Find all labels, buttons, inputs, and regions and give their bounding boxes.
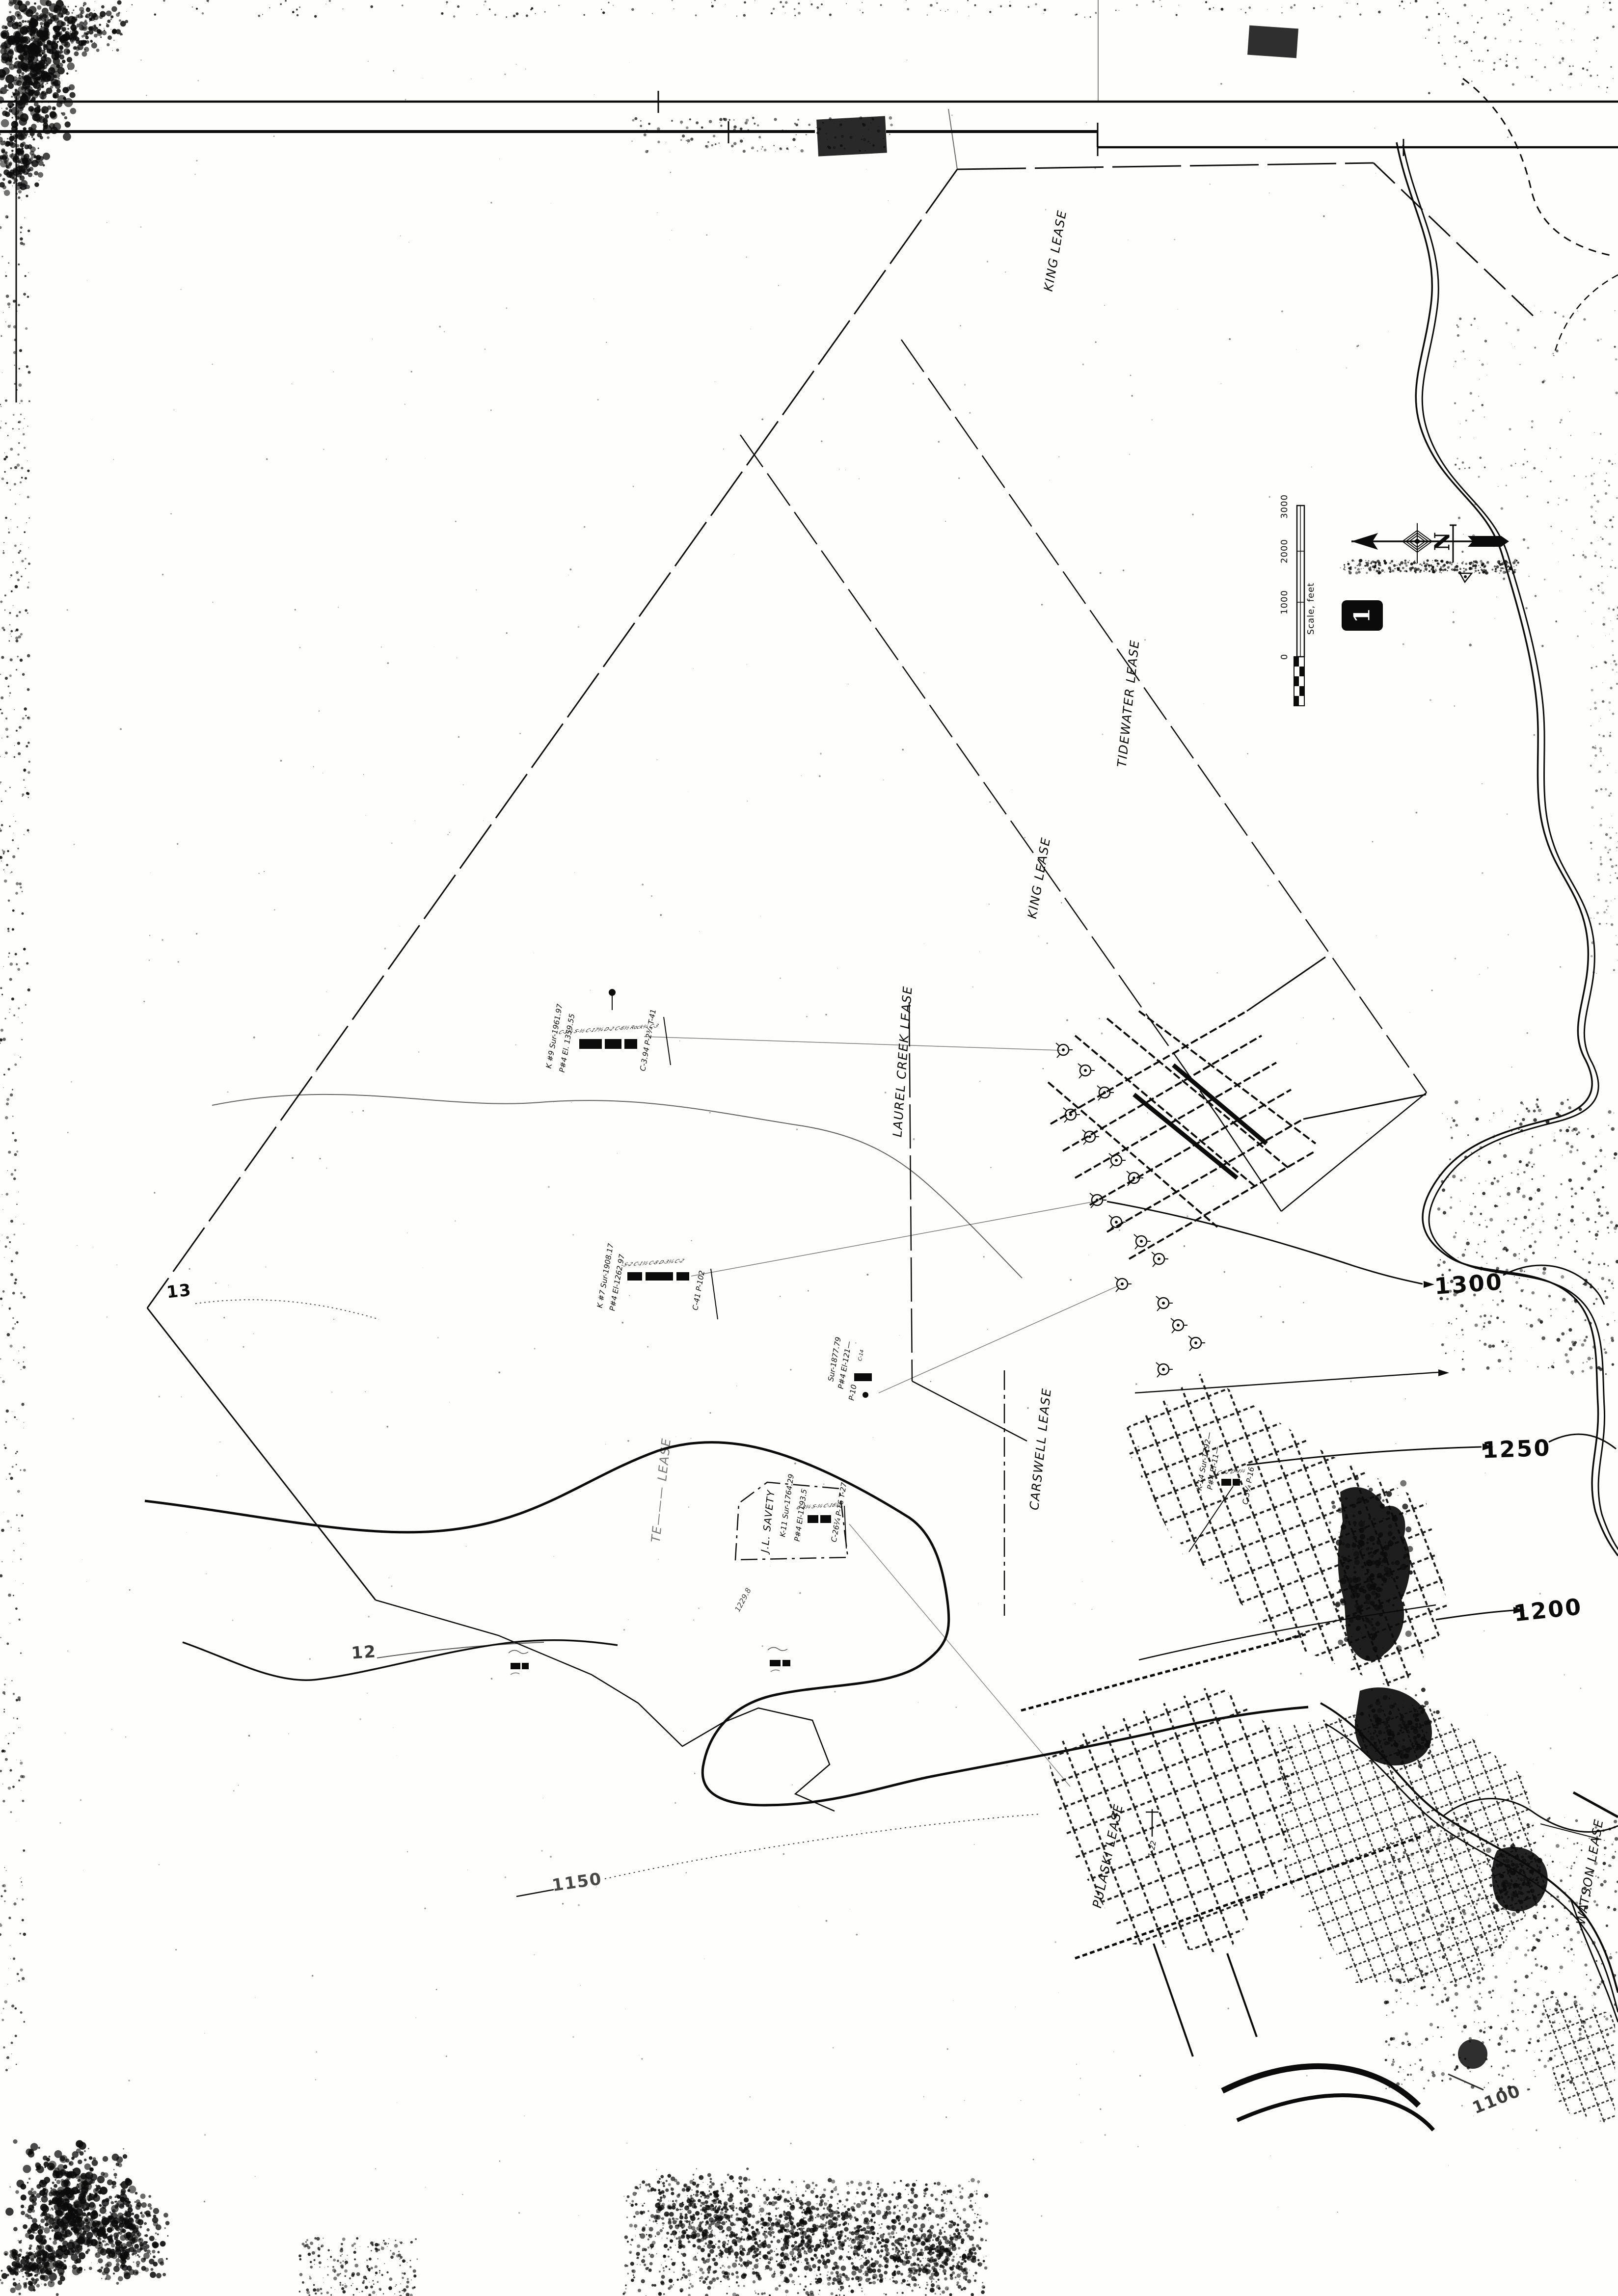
squiggle [511,1673,519,1675]
contour-1100-lead [1448,2074,1483,2090]
lease-labels: KING LEASE TIDEWATER LEASE KING LEASE LA… [648,209,1606,1926]
well-leader-lines [644,1037,1120,1393]
scan-smudges [816,26,1298,157]
watson-lease-line [1573,1792,1618,1817]
contour-label-12: 12 [351,1642,377,1663]
contour-1300-line [1107,1201,1423,1284]
well-casing-labels: C-14 [858,1349,865,1362]
casing-bar [1233,1479,1240,1486]
well-elev: P#4 El-1193.5 [793,1489,809,1542]
dashed-line-top-right [1463,79,1610,255]
town-block-area-west [1046,1683,1296,1953]
contour-1300-arrow [1424,1281,1434,1288]
west-road [183,1640,618,1681]
scale-bar-checker [1294,657,1304,706]
casing-bar [511,1663,520,1669]
casing-bar [605,1039,621,1049]
upper-town-streets-nw [1048,1011,1316,1227]
map-canvas: K #9 Sur-1961.97 P#4 El. 1359.55 C-1¼ S-… [0,0,1618,2296]
well-annotation-k7: K #7 Sur-1908.17 P#4 El-1262.97 S-2 C-1½… [595,1242,718,1319]
casing-bar [854,1373,872,1381]
upper-town-street-ext [1247,957,1426,1119]
lease-label-carswell: CARSWELL LEASE [1027,1387,1054,1511]
contour-1150-lead [516,1890,554,1896]
small-triangle-dot [1464,575,1467,578]
well-casing-labels: S-2 C-1½ C-8 D-3¼ C-2 [622,1258,685,1268]
contour-label-1300: 1300 [1433,1268,1504,1300]
casing-bar [646,1272,673,1281]
contour-13-line [195,1300,379,1319]
lease-label-laurel-creek: LAUREL CREEK LEASE [890,985,915,1138]
well-totals: C-3.94 P-2¾ T-41 [638,1009,658,1072]
scale-caption: Scale, feet [1306,583,1316,635]
upper-town-streets-bold [1134,1065,1267,1178]
main-town-grid [1021,1372,1615,2125]
scanned-map-sheet: K #9 Sur-1961.97 P#4 El. 1359.55 C-1¼ S-… [0,0,1618,2296]
squiggle [509,1650,528,1654]
leader-to-town [849,1524,1070,1787]
casing-bar [770,1660,781,1666]
well-symbols [1056,1043,1205,1377]
casing-bar [808,1515,818,1523]
tidewater-strip-south-line [740,435,1218,1117]
boundary-south-jagged [376,1600,835,1811]
laurel-creek-lease-line-ext [912,1381,1027,1441]
scale-tick-2000: 2000 [1279,539,1290,563]
north-arrow-feather [1468,536,1509,547]
casing-bar [627,1272,642,1281]
north-letter: N [1430,532,1455,551]
lease-label-king-north: KING LEASE [1041,209,1070,293]
contour-1150-line [605,1814,1041,1879]
tract-label-jl-savety: J.L. SAVETY [758,1489,777,1555]
well-annotation-k11: K-11 Sur-1764.29 P#4 El-1193.5 C-8¼ S-¼ … [778,1473,1070,1787]
figure-number-text: 1 [1350,608,1375,623]
elev-1229-label: 1229.8 [733,1586,753,1613]
well-dot [609,989,616,996]
well-name: K-11 Sur-1764.29 [778,1473,796,1538]
streets-to-river [1154,1944,1257,2056]
boundary-north [957,163,1374,169]
contour-label-1200: 1200 [1512,1593,1584,1627]
scale-bar: 3000 2000 1000 0 Scale, feet [1279,494,1316,706]
smudge-top-right [1247,26,1298,58]
small-casing-bars [509,1647,790,1675]
boundary-southwest [147,1308,376,1600]
boundary-northeast [1374,163,1537,320]
lease-label-tidewater: TIDEWATER LEASE [1114,639,1142,768]
carswell-line-arrowhead [1438,1369,1449,1376]
scale-tick-3000: 3000 [1279,494,1290,519]
casing-bar [676,1272,689,1281]
well-totals: P-10 [847,1384,858,1401]
upper-town-grid [644,957,1426,1393]
river-bank-west [1397,142,1618,1556]
totals-underline [664,1017,671,1065]
tidewater-strip-north-line [901,340,1427,1093]
well-annotation-k9: K #9 Sur-1961.97 P#4 El. 1359.55 C-1¼ S-… [544,989,671,1073]
boundary-north-whisker [948,109,957,169]
scale-tick-0: 0 [1279,654,1290,660]
casing-bar [782,1660,790,1666]
totals-underline [711,1269,718,1319]
contour-label-13: 13 [165,1280,192,1302]
scale-bar-divisions [1297,506,1304,657]
boundary-west-long [147,169,957,1308]
casing-bar [1221,1479,1231,1486]
scale-tick-1000: 1000 [1279,590,1290,614]
casing-bar [522,1663,529,1669]
squiggle [771,1670,780,1672]
contour-label-1250: 1250 [1482,1435,1552,1464]
well-dot [863,1392,868,1398]
casing-bar [624,1039,637,1049]
contour-label-1150: 1150 [551,1869,603,1896]
sheet-border-lines [0,0,1618,402]
river-bank-east [1403,145,1618,1558]
figure-number-box: 1 [1342,600,1383,631]
well-annotation-sur1877: Sur-1877.79 P#4 El-121— C-14 P-10 [826,1336,872,1401]
casing-bar [579,1039,602,1049]
contour-1250-line-east [1549,1434,1616,1449]
contour-1300-line-east [1503,1265,1604,1305]
squiggle [768,1647,787,1651]
dashed-line-top-right-2 [1554,275,1618,356]
casing-bar [820,1515,831,1523]
strip-connector-line [1281,1093,1427,1211]
bold-channel-arc-2 [1237,2095,1433,2130]
